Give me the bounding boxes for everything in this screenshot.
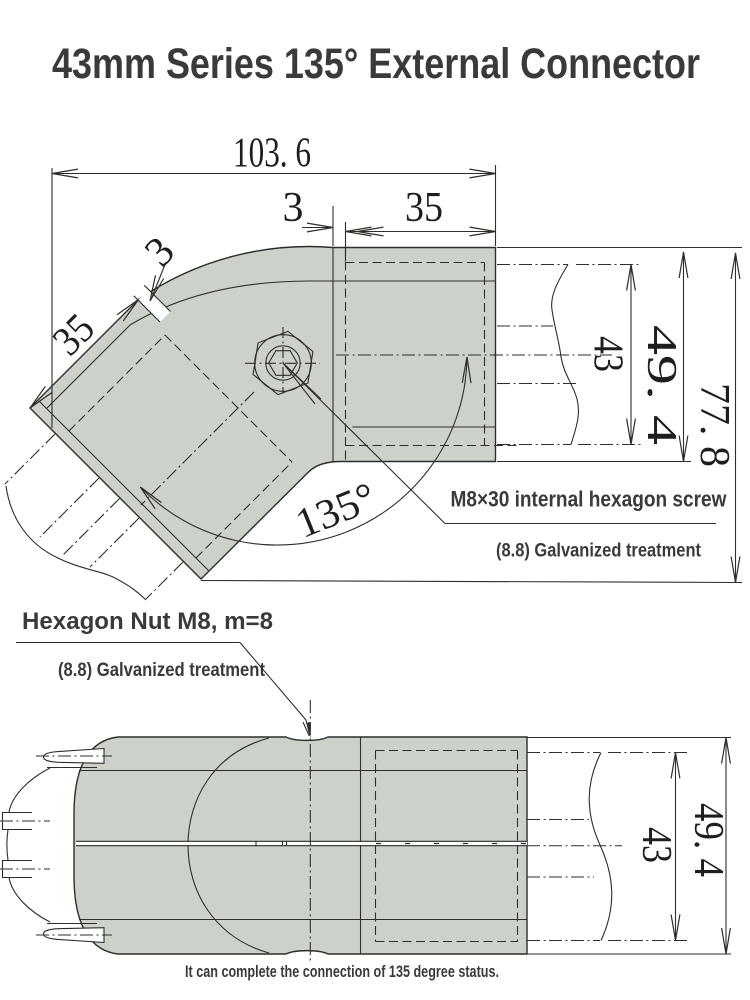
svg-text:It can complete the connection: It can complete the connection of 135 de… [185,962,499,981]
svg-text:49. 4: 49. 4 [638,325,684,445]
svg-text:43mm Series 135° External Conn: 43mm Series 135° External Connector [52,40,700,88]
svg-text:3: 3 [283,185,304,231]
svg-text:77. 8: 77. 8 [691,383,737,467]
svg-text:43: 43 [633,827,679,863]
svg-text:43: 43 [585,336,631,372]
svg-text:Hexagon Nut M8, m=8: Hexagon Nut M8, m=8 [22,608,273,635]
svg-text:M8×30 internal hexagon screw: M8×30 internal hexagon screw [451,487,728,512]
svg-text:(8.8) Galvanized treatment: (8.8) Galvanized treatment [496,541,702,562]
svg-text:(8.8) Galvanized treatment: (8.8) Galvanized treatment [58,660,266,681]
svg-text:103. 6: 103. 6 [233,131,311,177]
svg-text:35: 35 [405,185,443,231]
svg-text:49. 4: 49. 4 [685,803,731,877]
